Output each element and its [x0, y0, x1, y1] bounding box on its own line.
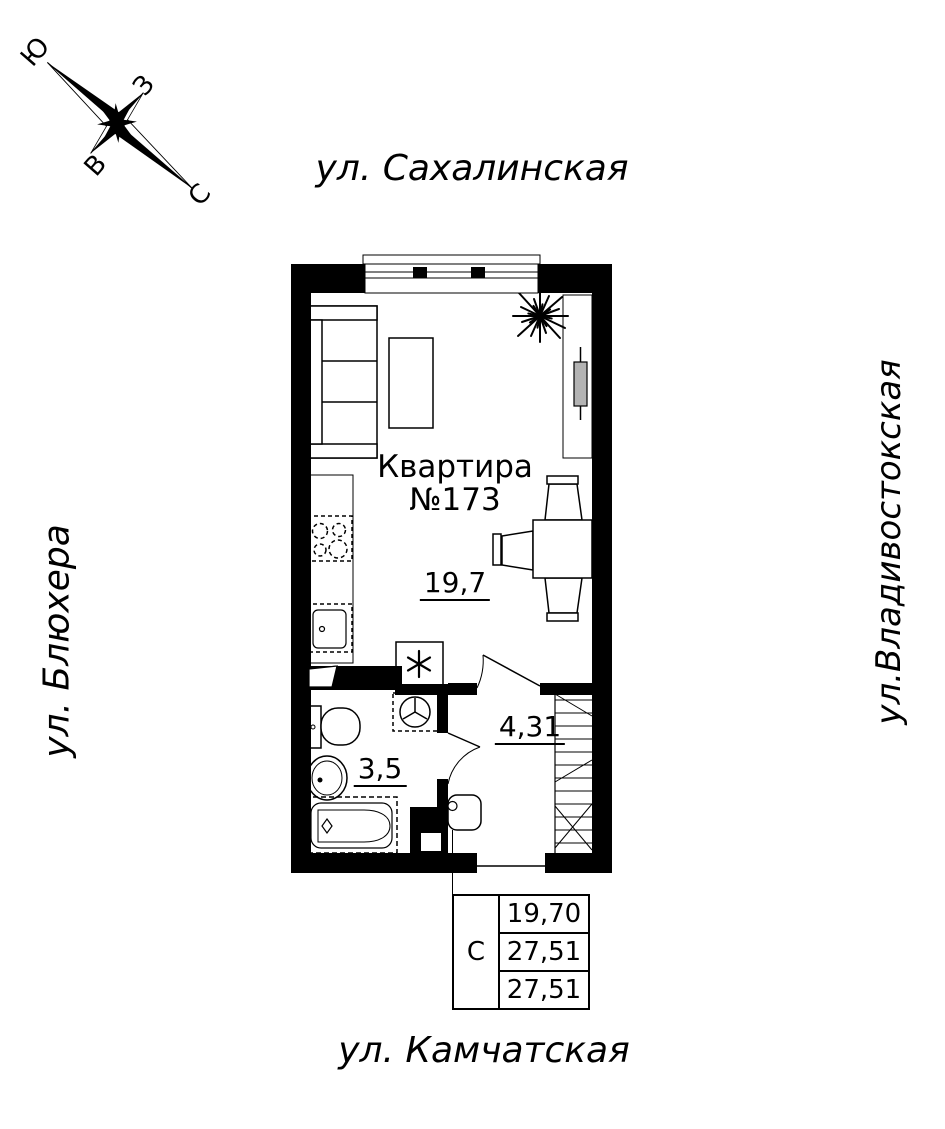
- window-mullion: [471, 267, 485, 278]
- door-leaf-bathroom-kitchen: [309, 666, 337, 687]
- door-living-hall: [477, 655, 540, 688]
- radiator: [574, 362, 587, 406]
- coffee-table: [389, 338, 433, 428]
- street-label-left: ул. Блюхера: [37, 524, 78, 758]
- sofa: [308, 306, 377, 458]
- area-label-living: 19,7: [420, 566, 490, 601]
- chair-left: [493, 531, 533, 570]
- dining-table: [533, 520, 592, 578]
- area-label-bathroom: 3,5: [354, 752, 407, 787]
- summary-total-area-2: 27,51: [500, 972, 588, 1008]
- area-label-hallway: 4,31: [495, 710, 565, 745]
- street-label-right: ул.Владивостокская: [869, 359, 909, 724]
- chair-bottom: [545, 578, 582, 621]
- washing-machine-icon: [393, 693, 438, 731]
- street-label-top: ул. Сахалинская: [316, 148, 629, 189]
- door-hall-bathroom: [448, 733, 480, 784]
- toilet-icon: [306, 706, 360, 748]
- floor-plan-page: Ю С З В: [0, 0, 945, 1129]
- chair-top: [545, 476, 582, 520]
- refrigerator-icon: [396, 642, 443, 686]
- wall-niche-shelf: [563, 295, 592, 458]
- apartment-title: Квартира №173: [377, 451, 533, 517]
- window: [363, 255, 540, 293]
- compass-rose-icon: Ю С З В: [0, 1, 247, 246]
- basin-icon: [307, 756, 347, 800]
- summary-total-area: 27,51: [500, 934, 588, 972]
- apartment-title-line1: Квартира: [377, 451, 533, 484]
- plant-icon: [513, 291, 568, 342]
- summary-living-area: 19,70: [500, 896, 588, 934]
- apartment-title-line2: №173: [377, 484, 533, 517]
- compass-east-label: В: [79, 149, 113, 182]
- water-heater-icon: [448, 795, 481, 830]
- street-label-bottom: ул. Камчатская: [338, 1030, 630, 1071]
- summary-section-label: С: [454, 896, 500, 1008]
- window-mullion: [413, 267, 427, 278]
- compass-west-label: З: [127, 70, 161, 102]
- compass-south-label: Ю: [15, 32, 56, 73]
- area-summary-table: С 19,70 27,51 27,51: [452, 894, 590, 1010]
- bathtub-icon: [305, 797, 397, 853]
